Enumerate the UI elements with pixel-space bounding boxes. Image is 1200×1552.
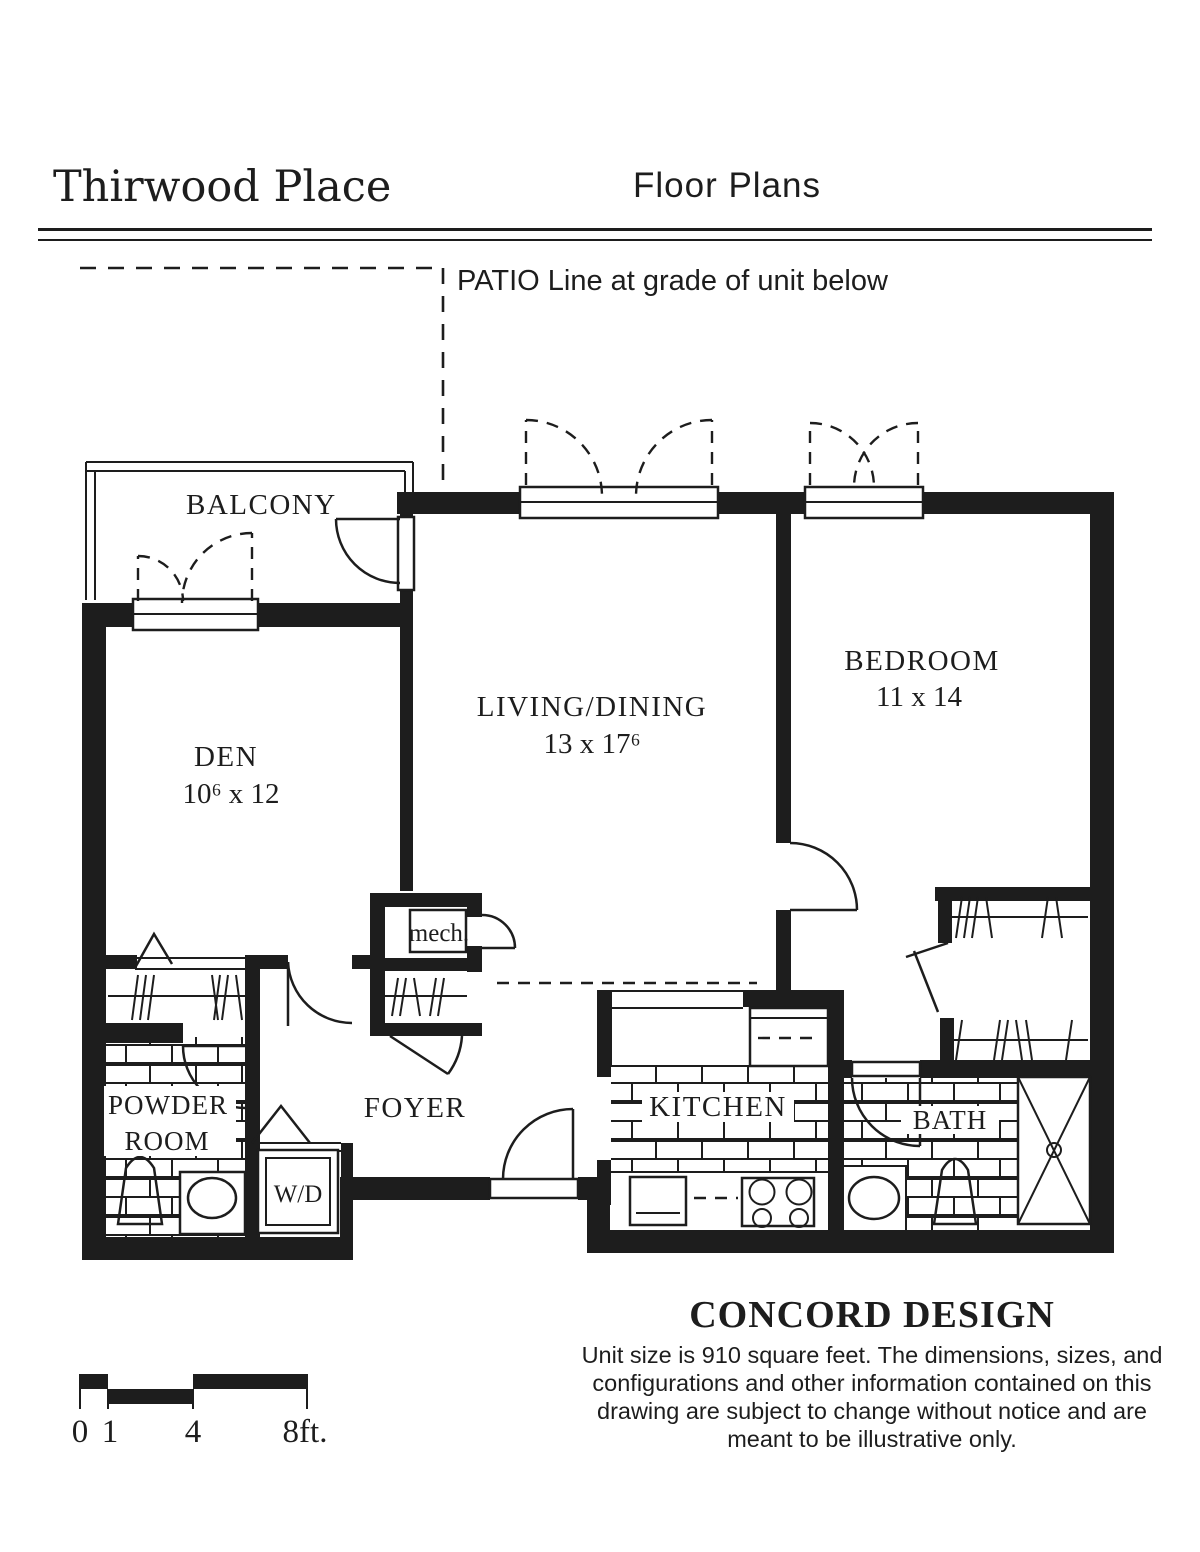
bedroom-dims: 11 x 14 [876,681,962,713]
design-name: CONCORD DESIGN [689,1294,1055,1336]
floor-plan-page: Thirwood Place Floor Plans PATIO Line at… [0,0,1200,1552]
bedroom-closet-hangers [952,897,1088,1060]
design-desc-line-2: configurations and other information con… [592,1370,1151,1396]
hall-closet-hangers [385,978,467,1016]
design-desc-line-1: Unit size is 910 square feet. The dimens… [582,1342,1163,1368]
mech-label-box: mech. [409,910,469,952]
scale-label-8ft: 8ft. [283,1414,328,1450]
header-rule-bottom [38,239,1152,241]
den-window [133,533,258,630]
refrigerator-fixture [630,1177,686,1225]
washer-dryer-box: W/D [258,1150,338,1233]
scale-label-1: 1 [102,1414,119,1450]
bedroom-window [805,423,923,518]
scale-label-4: 4 [185,1414,202,1450]
header-rule-top [38,228,1152,231]
den-closet-bifold-door [135,934,247,969]
bath-label: BATH [913,1105,988,1135]
shower-fixture [1018,1077,1090,1224]
mech-label: mech. [409,920,469,947]
bedroom-door-swing [790,843,857,910]
living-window [520,420,718,518]
bedroom-closet-bifold-door [906,943,948,1012]
laundry-bifold-door [247,1106,341,1151]
page-header: Thirwood Place Floor Plans [38,162,1152,241]
mech-door-swing [482,915,515,948]
balcony-door-swing [336,517,414,590]
powder-sink-fixture [180,1172,245,1234]
bath-vanity-sink-fixture [844,1166,908,1230]
hall-closet-door-swing [390,1036,462,1074]
scale-label-0: 0 [72,1414,89,1450]
laundry-label: W/D [274,1181,323,1208]
balcony-label: BALCONY [186,489,337,521]
page-subtitle: Floor Plans [633,166,821,205]
balcony-rail [86,462,413,600]
floor-plan-drawing: Thirwood Place Floor Plans PATIO Line at… [0,0,1200,1552]
design-desc-line-4: meant to be illustrative only. [727,1426,1017,1452]
scale-bar: 0 1 4 8ft. [72,1374,328,1450]
den-label: DEN [194,741,258,773]
den-door-swing [288,962,352,1026]
patio-grade-line: PATIO Line at grade of unit below [80,265,889,488]
den-closet-hangers [108,975,245,1020]
powder-room-label-2: ROOM [124,1126,209,1156]
bedroom-label: BEDROOM [844,645,1000,677]
powder-room-label-1: POWDER [108,1090,228,1120]
living-dining-dims: 13 x 17⁶ [543,728,640,760]
foyer-label: FOYER [364,1092,467,1124]
page-title: Thirwood Place [53,162,391,212]
living-dining-label: LIVING/DINING [477,691,708,723]
entry-door-swing [490,1109,578,1198]
design-block: CONCORD DESIGN Unit size is 910 square f… [582,1294,1163,1452]
kitchen-label: KITCHEN [649,1091,787,1123]
den-dims: 10⁶ x 12 [182,778,279,810]
patio-note: PATIO Line at grade of unit below [457,265,889,297]
stove-fixture [742,1178,814,1227]
design-desc-line-3: drawing are subject to change without no… [597,1398,1147,1424]
